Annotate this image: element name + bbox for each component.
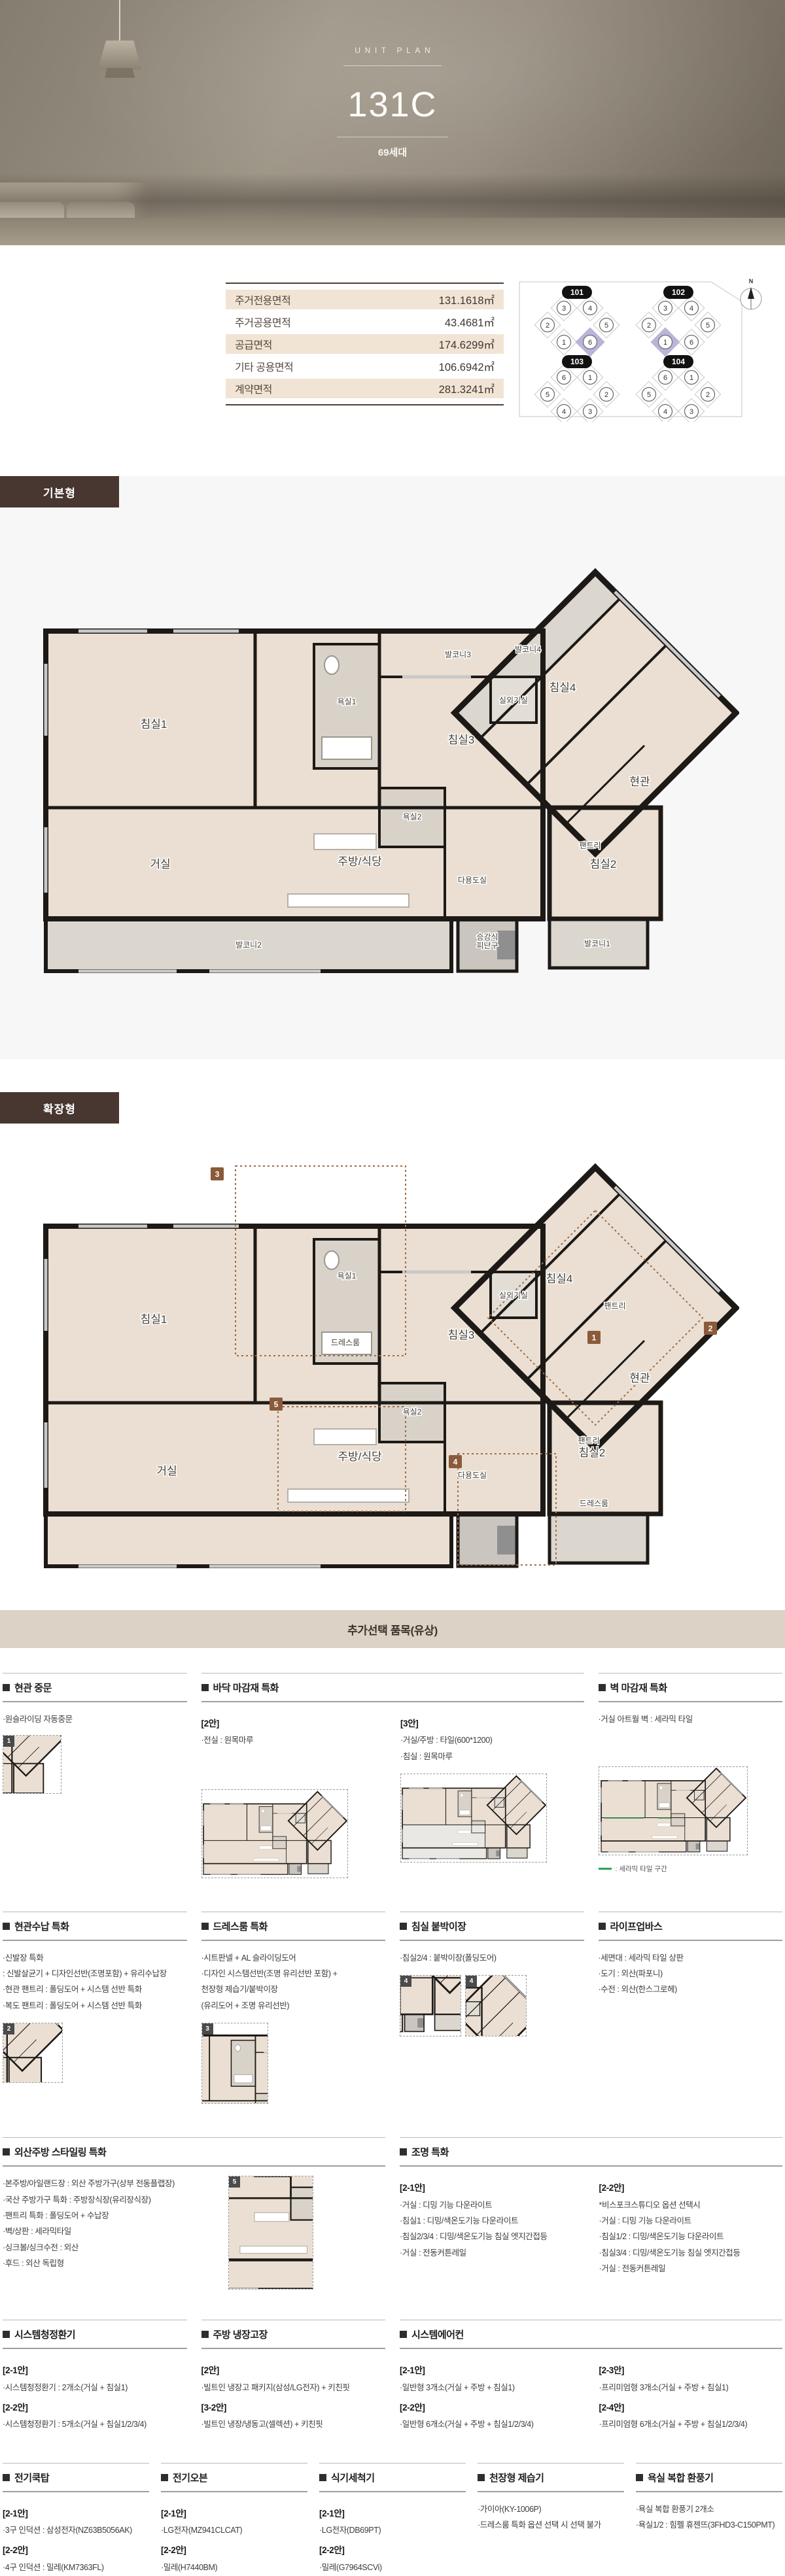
option-lines: ·침실2/4 : 붙박이장(폴딩도어) <box>400 1941 584 1966</box>
option-header-label: 전기오븐 <box>173 2471 207 2484</box>
option-line: ·밀레(G7964SCVi) <box>319 2560 466 2575</box>
option-lines: ·본주방/아일랜드장 : 외산 주방가구(상부 전동플랩장)·국산 주방가구 특… <box>3 2167 175 2271</box>
option-line: ·3구 인덕션 : 삼성전자(NZ63B5056AK) <box>3 2522 149 2538</box>
option-line: ·본주방/아일랜드장 : 외산 주방가구(상부 전동플랩장) <box>3 2176 175 2191</box>
option-lines: [2-1안]·거실 : 디밍 기능 다운라이트·침실1 : 디밍/색온도기능 다… <box>400 2167 584 2261</box>
option-lines: [2안]·전실 : 원목마루 <box>201 1702 385 1749</box>
option-line: ·도기 : 외산(파포니) <box>599 1966 783 1982</box>
option-column: 현관수납 특화·신발장 특화: 신발살균기 + 디자인선반(조명포함) + 유리… <box>3 1912 187 2087</box>
area-table-row: 공급면적174.6299㎡ <box>226 334 504 354</box>
option-line: ·거실 아트월 벽 : 세라믹 타일 <box>599 1711 783 1727</box>
option-line: *비스포크스튜디오 옵션 선택시 <box>599 2197 783 2213</box>
square-bullet-icon <box>319 2474 326 2481</box>
option-plan-thumbnail: 4 <box>400 1975 461 2036</box>
option-header-label: 드레스룸 특화 <box>213 1919 268 1933</box>
svg-text:6: 6 <box>663 374 667 382</box>
option-line: [2안] <box>201 2362 386 2379</box>
hero-banner: UNIT PLAN 131C 69세대 <box>0 0 785 245</box>
svg-text:침실2: 침실2 <box>590 858 617 870</box>
option-plan-thumbnail <box>599 1766 748 1855</box>
option-lines: ·가이아(KY-1006P)·드레스룸 특화 옵션 선택 시 선택 불가 <box>478 2492 624 2533</box>
option-plan-thumbnail <box>400 1774 547 1863</box>
option-header-label: 벽 마감재 특화 <box>610 1681 667 1694</box>
svg-text:발코니3: 발코니3 <box>445 650 471 659</box>
option-split: [2안]·전실 : 원목마루[3안]·거실/주방 : 타일(600*1200)·… <box>201 1702 584 1881</box>
svg-text:발코니2: 발코니2 <box>235 940 262 950</box>
option-line: [2-2안] <box>400 2399 584 2416</box>
option-plan-thumbnail: 1 <box>3 1735 61 1794</box>
option-section-header: 시스템청정환기 <box>3 2320 187 2349</box>
options-title-band: 추가선택 품목(유상) <box>0 1610 785 1648</box>
svg-text:드레스룸: 드레스룸 <box>331 1338 360 1347</box>
area-table: 주거전용면적131.1618㎡주거공용면적43.4681㎡공급면적174.629… <box>226 283 504 405</box>
svg-text:팬트리: 팬트리 <box>578 1436 599 1445</box>
option-header-label: 천장형 제습기 <box>489 2471 544 2484</box>
square-bullet-icon <box>161 2474 168 2481</box>
option-lines: [2-3안]·프리미엄형 3개소(거실 + 주방 + 침실1)[2-4안]·프리… <box>599 2349 783 2432</box>
option-header-label: 현관수납 특화 <box>14 1919 69 1933</box>
svg-text:거실: 거실 <box>150 858 170 870</box>
area-value: 174.6299㎡ <box>363 336 504 352</box>
option-line: ·침실1 : 디밍/색온도기능 다운라이트 <box>400 2213 584 2229</box>
svg-text:5: 5 <box>274 1400 279 1409</box>
area-value: 131.1618㎡ <box>363 292 504 307</box>
option-plan-thumbnail-svg <box>229 2176 313 2289</box>
option-line: [2-1안] <box>400 2180 584 2197</box>
option-line: ·욕실 복합 환풍기 2개소 <box>636 2501 782 2517</box>
option-line: ·신발장 특화 <box>3 1950 187 1966</box>
tile-legend: : 세라믹 타일 구간 <box>599 1864 783 1874</box>
svg-text:욕실1: 욕실1 <box>338 1271 357 1280</box>
option-column: 드레스룸 특화·시트판넬 + AL 슬라이딩도어·디자인 시스템선반(조명 유리… <box>201 1912 386 2108</box>
option-header-label: 시스템에어컨 <box>411 2327 464 2341</box>
svg-text:침실2: 침실2 <box>579 1447 606 1459</box>
site-key-plan: 342516101342516102615243103615243104N <box>512 271 763 425</box>
option-column: 주방 냉장고장[2안]·빌트인 냉장고 패키지(삼성/LG전자) + 키친핏[3… <box>201 2320 386 2432</box>
thumbnail-marker: 4 <box>400 1976 411 1987</box>
option-lines: [2-2안]*비스포크스튜디오 옵션 선택시·거실 : 디밍 기능 다운라이트·… <box>599 2167 783 2276</box>
option-line: ·거실 : 디밍 기능 다운라이트 <box>599 2213 783 2229</box>
option-line: (유리도어 + 조명 유리선반) <box>201 1998 386 2014</box>
unit-plan-page: UNIT PLAN 131C 69세대 주거전용면적131.1618㎡주거공용면… <box>0 0 785 2576</box>
svg-text:침실4: 침실4 <box>549 681 576 694</box>
options-row: 현관 중문·원슬라이딩 자동중문1바닥 마감재 특화[2안]·전실 : 원목마루… <box>3 1673 782 1881</box>
option-line: [2-1안] <box>400 2362 584 2379</box>
option-header-label: 침실 붙박이장 <box>411 1919 466 1933</box>
unit-count: 69세대 <box>0 145 785 159</box>
svg-text:2: 2 <box>708 1324 713 1333</box>
option-line: ·침실2/4 : 붙박이장(폴딩도어) <box>400 1950 584 1966</box>
area-table-row: 주거전용면적131.1618㎡ <box>226 290 504 309</box>
svg-text:2: 2 <box>604 391 608 399</box>
option-line: ·빌트인 냉장/냉동고(셀렉션) + 키친핏 <box>201 2416 386 2432</box>
option-line: [2-1안] <box>161 2505 307 2522</box>
thumbnail-marker: 2 <box>3 2023 14 2035</box>
option-header-label: 시스템청정환기 <box>14 2327 75 2341</box>
site-key-plan-svg: 342516101342516102615243103615243104N <box>512 271 763 422</box>
option-header-label: 현관 중문 <box>14 1681 52 1694</box>
square-bullet-icon <box>201 2331 209 2338</box>
option-section-header: 조명 특화 <box>400 2137 782 2167</box>
svg-text:3: 3 <box>588 408 592 416</box>
option-header-label: 욕실 복합 환풍기 <box>648 2471 713 2484</box>
svg-text:4: 4 <box>663 408 667 416</box>
square-bullet-icon <box>3 2331 10 2338</box>
option-line: [2-1안] <box>319 2505 466 2522</box>
option-line: ·일반형 3개소(거실 + 주방 + 침실1) <box>400 2380 584 2396</box>
svg-text:104: 104 <box>672 357 685 366</box>
option-split: [2-1안]·거실 : 디밍 기능 다운라이트·침실1 : 디밍/색온도기능 다… <box>400 2167 782 2276</box>
options-row: 현관수납 특화·신발장 특화: 신발살균기 + 디자인선반(조명포함) + 유리… <box>3 1912 782 2108</box>
option-line: ·벽/상판 : 세라믹타일 <box>3 2224 175 2239</box>
option-line: ·LG전자(DB69PT) <box>319 2522 466 2538</box>
thumbnail-marker: 3 <box>202 2023 213 2035</box>
option-line: ·원슬라이딩 자동중문 <box>3 1711 187 1727</box>
svg-text:현관: 현관 <box>629 776 650 788</box>
option-lines: ·욕실 복합 환풍기 2개소·욕실1/2 : 힘펠 휴젠뜨(3FHD3-C150… <box>636 2492 782 2533</box>
svg-text:다용도실: 다용도실 <box>458 876 487 885</box>
extended-plan-section: 확장형 침실1욕실1드레스룸침실3실외기실거실주방/식당다용도실욕실2침실2드레… <box>0 1092 785 1610</box>
svg-text:6: 6 <box>588 339 592 347</box>
area-label: 공급면적 <box>226 336 363 352</box>
option-plan-thumbnail: 2 <box>3 2023 63 2083</box>
svg-text:실외기실: 실외기실 <box>499 1291 528 1300</box>
svg-text:4: 4 <box>588 305 592 313</box>
option-column: 외산주방 스타일링 특화·본주방/아일랜드장 : 외산 주방가구(상부 전동플랩… <box>3 2137 385 2290</box>
option-header-label: 라이프업바스 <box>610 1919 663 1933</box>
option-section-header: 벽 마감재 특화 <box>599 1673 783 1702</box>
option-line: ·세면대 : 세라믹 타일 상판 <box>599 1950 783 1966</box>
area-table-row: 주거공용면적43.4681㎡ <box>226 312 504 332</box>
option-section-header: 식기세척기 <box>319 2463 466 2492</box>
option-header-label: 주방 냉장고장 <box>213 2327 268 2341</box>
option-line: ·LG전자(MZ941CLCAT) <box>161 2522 307 2538</box>
option-subcolumn: [2-1안]·거실 : 디밍 기능 다운라이트·침실1 : 디밍/색온도기능 다… <box>400 2167 584 2261</box>
option-subcolumn: [2-2안]*비스포크스튜디오 옵션 선택시·거실 : 디밍 기능 다운라이트·… <box>599 2167 783 2276</box>
option-subcolumn: [2-3안]·프리미엄형 3개소(거실 + 주방 + 침실1)[2-4안]·프리… <box>599 2349 783 2432</box>
option-line: ·디자인 시스템선반(조명 유리선반 포함) + <box>201 1966 386 1982</box>
svg-text:4: 4 <box>453 1458 458 1467</box>
option-line: ·4구 인덕션 : 밀레(KM7363FL) <box>3 2560 149 2575</box>
option-line: ·침실2/3/4 : 디밍/색온도기능 침실 엣지간접등 <box>400 2229 584 2244</box>
option-section-header: 전기쿡탑 <box>3 2463 149 2492</box>
basic-plan-section: 기본형 침실1욕실1발코니3침실3실외기실거실주방/식당다용도실욕실2침실2발코… <box>0 476 785 1059</box>
option-line: ·거실 : 전동커튼레일 <box>599 2261 783 2276</box>
option-line: ·수전 : 외산(한스그로헤) <box>599 1982 783 1997</box>
hero-divider-top <box>343 65 442 66</box>
option-lines: [2안]·빌트인 냉장고 패키지(삼성/LG전자) + 키친핏[3-2안]·빌트… <box>201 2349 386 2432</box>
option-lines: [2-1안]·일반형 3개소(거실 + 주방 + 침실1)[2-2안]·일반형 … <box>400 2349 584 2432</box>
svg-text:발코니4: 발코니4 <box>515 645 541 654</box>
thumbnail-marker: 5 <box>229 2176 240 2188</box>
option-line: [2-2안] <box>3 2542 149 2559</box>
svg-text:드레스룸: 드레스룸 <box>580 1499 608 1508</box>
options-row: 시스템청정환기[2-1안]·시스템청정환기 : 2개소(거실 + 침실1)[2-… <box>3 2320 782 2432</box>
option-plan-thumbnail-svg <box>401 1774 546 1862</box>
option-column: 시스템에어컨[2-1안]·일반형 3개소(거실 + 주방 + 침실1)[2-2안… <box>400 2320 782 2432</box>
option-column: 벽 마감재 특화·거실 아트월 벽 : 세라믹 타일: 세라믹 타일 구간 <box>599 1673 783 1874</box>
extended-plan-tab: 확장형 <box>0 1092 119 1124</box>
option-line: ·현관 팬트리 : 폴딩도어 + 시스템 선반 특화 <box>3 1982 187 1997</box>
option-lines: ·신발장 특화: 신발살균기 + 디자인선반(조명포함) + 유리수납장·현관 … <box>3 1941 187 2014</box>
option-line: ·침실3/4 : 디밍/색온도기능 침실 엣지간접등 <box>599 2245 783 2261</box>
thumbnail-pair: 44 <box>400 1975 584 2036</box>
option-section-header: 침실 붙박이장 <box>400 1912 584 1941</box>
option-line: ·침실1/2 : 디밍/색온도기능 다운라이트 <box>599 2229 783 2244</box>
option-plan-thumbnail-svg <box>599 1767 747 1855</box>
square-bullet-icon <box>636 2474 643 2481</box>
option-line: [3안] <box>400 1715 584 1732</box>
square-bullet-icon <box>3 1923 10 1930</box>
svg-text:발코니1: 발코니1 <box>584 939 610 948</box>
option-line: ·시스템청정환기 : 5개소(거실 + 침실1/2/3/4) <box>3 2416 187 2432</box>
option-line: ·시스템청정환기 : 2개소(거실 + 침실1) <box>3 2380 187 2396</box>
option-line: : 신발살균기 + 디자인선반(조명포함) + 유리수납장 <box>3 1966 187 1982</box>
svg-text:2: 2 <box>647 322 651 330</box>
svg-text:103: 103 <box>570 357 584 366</box>
option-column: 욕실 복합 환풍기·욕실 복합 환풍기 2개소·욕실1/2 : 힘펠 휴젠뜨(3… <box>636 2463 782 2575</box>
option-line: [2-1안] <box>3 2505 149 2522</box>
thumbnail-marker: 4 <box>466 1976 477 1987</box>
option-line: [2-1안] <box>3 2362 187 2379</box>
extended-floor-plan: 침실1욕실1드레스룸침실3실외기실거실주방/식당다용도실욕실2침실2드레스룸침실… <box>39 1124 785 1583</box>
option-line: [2안] <box>201 1715 385 1732</box>
option-column: 전기오븐[2-1안]·LG전자(MZ941CLCAT)[2-2안]·밀레(H74… <box>161 2463 307 2575</box>
option-line: ·빌트인 냉장고 패키지(삼성/LG전자) + 키친핏 <box>201 2380 386 2396</box>
thumbnail-marker: 1 <box>3 1736 14 1747</box>
svg-text:2: 2 <box>706 391 710 399</box>
hero-eyebrow: UNIT PLAN <box>0 46 785 55</box>
legend-line-icon <box>599 1868 612 1870</box>
svg-text:침실3: 침실3 <box>448 1329 475 1341</box>
svg-text:승강식피난구: 승강식피난구 <box>476 933 498 950</box>
option-header-label: 식기세척기 <box>331 2471 375 2484</box>
area-value: 43.4681㎡ <box>363 314 504 330</box>
option-line: ·밀레(H7440BM) <box>161 2560 307 2575</box>
option-column: 천장형 제습기·가이아(KY-1006P)·드레스룸 특화 옵션 선택 시 선택… <box>478 2463 624 2575</box>
svg-text:1: 1 <box>588 374 592 382</box>
square-bullet-icon <box>3 2148 10 2155</box>
area-table-row: 계약면적281.3241㎡ <box>226 379 504 398</box>
options-bottom-row: 전기쿡탑[2-1안]·3구 인덕션 : 삼성전자(NZ63B5056AK)[2-… <box>3 2463 782 2575</box>
option-line: [2-3안] <box>599 2362 783 2379</box>
svg-text:4: 4 <box>689 305 693 313</box>
option-split: [2-1안]·일반형 3개소(거실 + 주방 + 침실1)[2-2안]·일반형 … <box>400 2349 782 2432</box>
svg-text:5: 5 <box>647 391 651 399</box>
svg-text:6: 6 <box>562 374 566 382</box>
svg-text:실외기실: 실외기실 <box>499 696 528 705</box>
square-bullet-icon <box>201 1684 209 1691</box>
option-line: ·욕실1/2 : 힘펠 휴젠뜨(3FHD3-C150PMT) <box>636 2517 782 2533</box>
square-bullet-icon <box>400 2331 407 2338</box>
option-line: [2-2안] <box>319 2542 466 2559</box>
option-lines: [2-1안]·LG전자(MZ941CLCAT)[2-2안]·밀레(H7440BM… <box>161 2492 307 2575</box>
option-section-header: 현관수납 특화 <box>3 1912 187 1941</box>
option-line: [2-2안] <box>599 2180 783 2197</box>
option-section-header: 바닥 마감재 특화 <box>201 1673 584 1702</box>
option-subcolumn: [3안]·거실/주방 : 타일(600*1200)·침실 : 원목마루 <box>400 1702 584 1866</box>
option-line: ·전실 : 원목마루 <box>201 1732 385 1748</box>
area-value: 281.3241㎡ <box>363 381 504 396</box>
square-bullet-icon <box>3 2474 10 2481</box>
svg-text:1: 1 <box>663 339 667 347</box>
option-line: ·프리미엄형 6개소(거실 + 주방 + 침실1/2/3/4) <box>599 2416 783 2432</box>
option-lines: [2-1안]·3구 인덕션 : 삼성전자(NZ63B5056AK)[2-2안]·… <box>3 2492 149 2575</box>
option-line: ·가이아(KY-1006P) <box>478 2501 624 2517</box>
option-column: 시스템청정환기[2-1안]·시스템청정환기 : 2개소(거실 + 침실1)[2-… <box>3 2320 187 2432</box>
option-plan-thumbnail: 5 <box>228 2176 313 2290</box>
svg-text:욕실2: 욕실2 <box>403 812 422 821</box>
option-column: 전기쿡탑[2-1안]·3구 인덕션 : 삼성전자(NZ63B5056AK)[2-… <box>3 2463 149 2575</box>
option-section-header: 전기오븐 <box>161 2463 307 2492</box>
option-lines: [2-1안]·LG전자(DB69PT)[2-2안]·밀레(G7964SCVi) <box>319 2492 466 2575</box>
option-line: [2-2안] <box>161 2542 307 2559</box>
svg-text:팬트리: 팬트리 <box>604 1301 625 1311</box>
svg-text:2: 2 <box>546 322 549 330</box>
option-header-label: 바닥 마감재 특화 <box>213 1681 279 1694</box>
svg-text:6: 6 <box>689 339 693 347</box>
option-lines: [3안]·거실/주방 : 타일(600*1200)·침실 : 원목마루 <box>400 1702 584 1764</box>
option-line: ·일반형 6개소(거실 + 주방 + 침실1/2/3/4) <box>400 2416 584 2432</box>
option-lines: ·시트판넬 + AL 슬라이딩도어·디자인 시스템선반(조명 유리선반 포함) … <box>201 1941 386 2014</box>
svg-text:현관: 현관 <box>629 1372 650 1384</box>
option-section-header: 현관 중문 <box>3 1673 187 1702</box>
area-value: 106.6942㎡ <box>363 358 504 374</box>
option-line: ·드레스룸 특화 옵션 선택 시 선택 불가 <box>478 2517 624 2533</box>
option-subcolumn: [2안]·전실 : 원목마루 <box>201 1702 385 1881</box>
option-plan-thumbnail: 3 <box>201 2023 268 2104</box>
svg-text:침실3: 침실3 <box>448 734 475 746</box>
hero-shadow <box>0 173 785 219</box>
svg-text:N: N <box>749 278 754 284</box>
option-line: ·거실/주방 : 타일(600*1200) <box>400 1732 584 1748</box>
svg-text:거실: 거실 <box>156 1465 177 1477</box>
option-column: 현관 중문·원슬라이딩 자동중문1 <box>3 1673 187 1797</box>
square-bullet-icon <box>478 2474 485 2481</box>
option-subcolumn: [2-1안]·일반형 3개소(거실 + 주방 + 침실1)[2-2안]·일반형 … <box>400 2349 584 2432</box>
option-line: ·시트판넬 + AL 슬라이딩도어 <box>201 1950 386 1966</box>
area-label: 기타 공용면적 <box>226 358 363 374</box>
svg-text:3: 3 <box>689 408 693 416</box>
svg-text:침실4: 침실4 <box>546 1273 573 1285</box>
option-line: ·싱크볼/싱크수전 : 외산 <box>3 2240 175 2256</box>
option-lines: ·원슬라이딩 자동중문 <box>3 1702 187 1727</box>
svg-text:1: 1 <box>689 374 693 382</box>
svg-text:주방/식당: 주방/식당 <box>338 1451 382 1463</box>
option-header-label: 외산주방 스타일링 특화 <box>14 2145 106 2159</box>
option-section-header: 천장형 제습기 <box>478 2463 624 2492</box>
option-plan-thumbnail: 4 <box>465 1975 527 2036</box>
option-line: [2-2안] <box>3 2399 187 2416</box>
square-bullet-icon <box>599 1923 606 1930</box>
option-section-header: 외산주방 스타일링 특화 <box>3 2137 385 2167</box>
svg-text:다용도실: 다용도실 <box>458 1471 487 1480</box>
option-column: 식기세척기[2-1안]·LG전자(DB69PT)[2-2안]·밀레(G7964S… <box>319 2463 466 2575</box>
option-plan-thumbnail-svg <box>202 2023 268 2103</box>
hero-divider-bottom <box>337 137 448 137</box>
option-lines: ·거실 아트월 벽 : 세라믹 타일 <box>599 1702 783 1727</box>
svg-text:3: 3 <box>215 1170 220 1179</box>
svg-text:3: 3 <box>562 305 566 313</box>
option-line: ·프리미엄형 3개소(거실 + 주방 + 침실1) <box>599 2380 783 2396</box>
option-column: 조명 특화[2-1안]·거실 : 디밍 기능 다운라이트·침실1 : 디밍/색온… <box>400 2137 782 2276</box>
option-line: ·팬트리 특화 : 폴딩도어 + 수납장 <box>3 2208 175 2224</box>
svg-text:5: 5 <box>546 391 549 399</box>
svg-text:1: 1 <box>592 1333 597 1343</box>
area-label: 주거공용면적 <box>226 314 363 330</box>
option-section-header: 시스템에어컨 <box>400 2320 782 2349</box>
legend-label: : 세라믹 타일 구간 <box>616 1864 667 1874</box>
basic-floor-plan: 침실1욕실1발코니3침실3실외기실거실주방/식당다용도실욕실2침실2발코니2승강… <box>39 507 785 987</box>
option-plan-thumbnail-svg <box>202 1790 347 1878</box>
option-line: [3-2안] <box>201 2399 386 2416</box>
svg-text:102: 102 <box>672 288 685 297</box>
paid-options-grid: 현관 중문·원슬라이딩 자동중문1바닥 마감재 특화[2안]·전실 : 원목마루… <box>0 1648 785 2575</box>
svg-text:5: 5 <box>706 322 710 330</box>
square-bullet-icon <box>3 1684 10 1691</box>
option-line: ·거실 : 전동커튼레일 <box>400 2245 584 2261</box>
svg-text:침실1: 침실1 <box>141 718 167 730</box>
square-bullet-icon <box>599 1684 606 1691</box>
option-column: 바닥 마감재 특화[2안]·전실 : 원목마루[3안]·거실/주방 : 타일(6… <box>201 1673 584 1881</box>
option-section-header: 라이프업바스 <box>599 1912 783 1941</box>
option-line: ·후드 : 외산 독립형 <box>3 2256 175 2271</box>
option-section-header: 주방 냉장고장 <box>201 2320 386 2349</box>
svg-text:4: 4 <box>562 408 566 416</box>
options-title: 추가선택 품목(유상) <box>347 1621 438 1638</box>
svg-text:주방/식당: 주방/식당 <box>338 855 382 868</box>
unit-type-title: 131C <box>0 84 785 125</box>
svg-text:3: 3 <box>663 305 667 313</box>
option-line: ·국산 주방가구 특화 : 주방장식장(유리장식장) <box>3 2192 175 2208</box>
area-label: 주거전용면적 <box>226 292 363 307</box>
square-bullet-icon <box>400 2148 407 2155</box>
svg-text:욕실1: 욕실1 <box>338 697 357 706</box>
option-line: ·복도 팬트리 : 폴딩도어 + 시스템 선반 특화 <box>3 1998 187 2014</box>
option-section-header: 드레스룸 특화 <box>201 1912 386 1941</box>
basic-floor-plan-svg: 침실1욕실1발코니3침실3실외기실거실주방/식당다용도실욕실2침실2발코니2승강… <box>39 553 739 984</box>
area-info-section: 주거전용면적131.1618㎡주거공용면적43.4681㎡공급면적174.629… <box>0 245 785 476</box>
option-column: 라이프업바스·세면대 : 세라믹 타일 상판·도기 : 외산(파포니)·수전 :… <box>599 1912 783 1998</box>
svg-text:침실1: 침실1 <box>141 1313 167 1326</box>
option-line: 천장형 제습기/붙박이장 <box>201 1982 386 1997</box>
option-column: 침실 붙박이장·침실2/4 : 붙박이장(폴딩도어)44 <box>400 1912 584 2036</box>
option-lines: ·세면대 : 세라믹 타일 상판·도기 : 외산(파포니)·수전 : 외산(한스… <box>599 1941 783 1998</box>
options-row: 외산주방 스타일링 특화·본주방/아일랜드장 : 외산 주방가구(상부 전동플랩… <box>3 2137 782 2290</box>
extended-floor-plan-svg: 침실1욕실1드레스룸침실3실외기실거실주방/식당다용도실욕실2침실2드레스룸침실… <box>39 1148 739 1579</box>
square-bullet-icon <box>201 1923 209 1930</box>
option-line: ·침실 : 원목마루 <box>400 1749 584 1764</box>
svg-text:팬트리: 팬트리 <box>579 841 601 850</box>
option-plan-thumbnail <box>201 1789 348 1878</box>
option-line: ·거실 : 디밍 기능 다운라이트 <box>400 2197 584 2213</box>
basic-plan-tab: 기본형 <box>0 476 119 507</box>
kitchen-option-wrap: ·본주방/아일랜드장 : 외산 주방가구(상부 전동플랩장)·국산 주방가구 특… <box>3 2167 385 2290</box>
option-lines: [2-1안]·시스템청정환기 : 2개소(거실 + 침실1)[2-2안]·시스템… <box>3 2349 187 2432</box>
svg-text:1: 1 <box>562 339 566 347</box>
hero-floor <box>0 218 785 245</box>
area-table-row: 기타 공용면적106.6942㎡ <box>226 356 504 376</box>
option-header-label: 조명 특화 <box>411 2145 449 2159</box>
option-section-header: 욕실 복합 환풍기 <box>636 2463 782 2492</box>
option-line: [2-4안] <box>599 2399 783 2416</box>
option-header-label: 전기쿡탑 <box>14 2471 49 2484</box>
area-label: 계약면적 <box>226 381 363 396</box>
square-bullet-icon <box>400 1923 407 1930</box>
svg-text:101: 101 <box>570 288 584 297</box>
svg-text:욕실2: 욕실2 <box>403 1407 422 1417</box>
svg-text:5: 5 <box>604 322 608 330</box>
